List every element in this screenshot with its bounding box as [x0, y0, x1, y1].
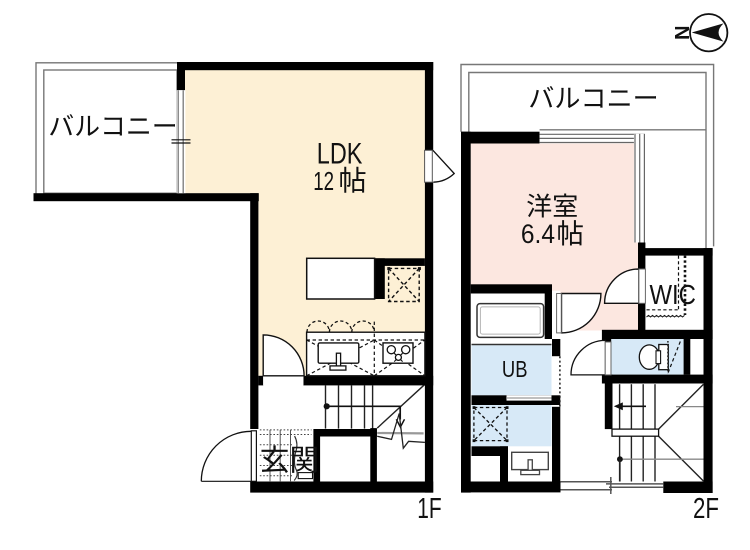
- svg-text:1F: 1F: [417, 493, 441, 525]
- svg-text:WIC: WIC: [649, 279, 696, 310]
- svg-text:2F: 2F: [693, 493, 719, 525]
- svg-text:12: 12: [313, 166, 334, 196]
- svg-text:UB: UB: [502, 356, 528, 382]
- svg-text:N: N: [670, 25, 692, 39]
- svg-text:6.4: 6.4: [521, 219, 555, 249]
